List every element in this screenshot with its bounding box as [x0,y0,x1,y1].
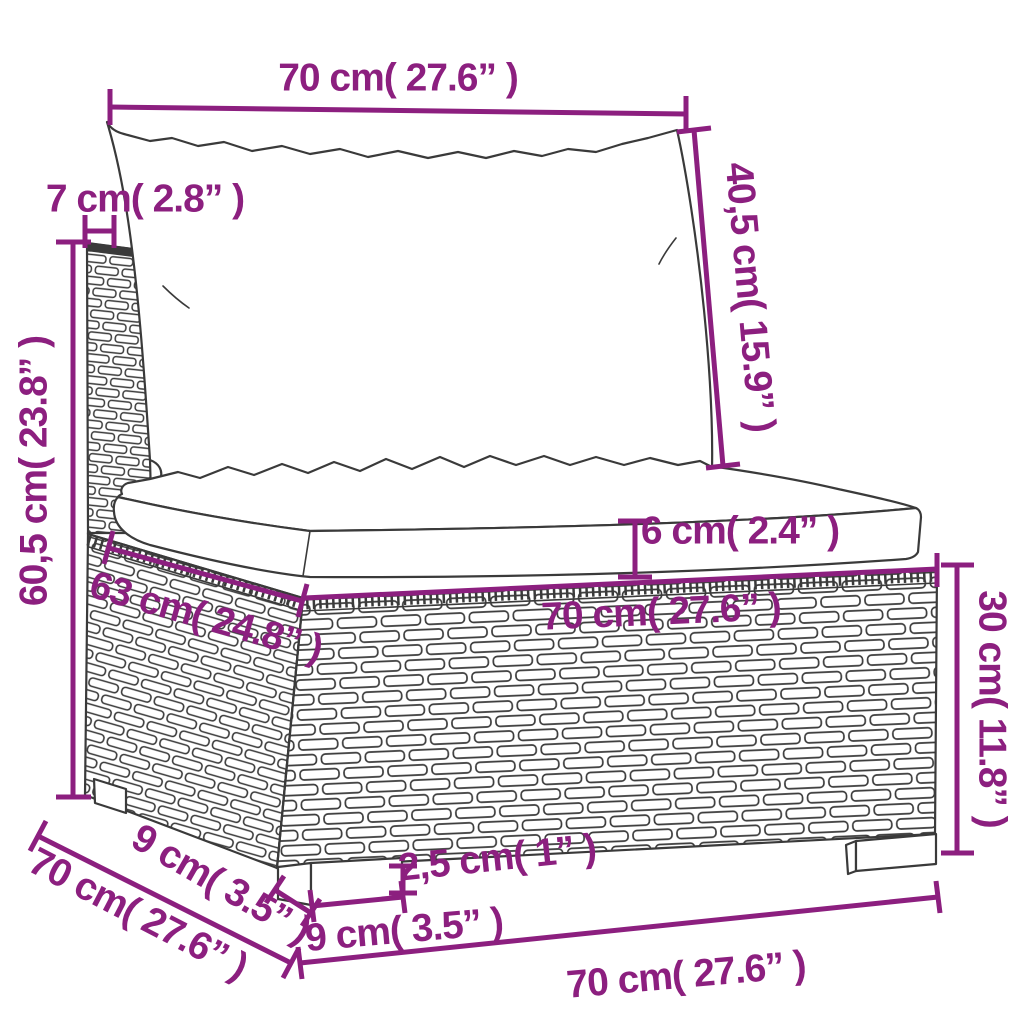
dim-label-base-height: 30 cm( 11.8” ) [971,590,1014,827]
dim-base-height: 30 cm( 11.8” ) [941,565,1014,853]
leg-front-right-side [846,841,856,874]
dim-overall-height: 60,5 cm( 23.8” ) [13,242,92,797]
leg-front-right-front [856,834,936,871]
dim-label-back-post-depth: 7 cm( 2.8” ) [46,178,244,221]
diagram-canvas: 70 cm( 27.6” ) 40,5 cm( 15.9” ) 7 cm( 2.… [0,0,1024,1024]
sofa-base [85,534,937,868]
dimension-diagram: 70 cm( 27.6” ) 40,5 cm( 15.9” ) 7 cm( 2.… [0,0,1024,1024]
dim-label-back-cushion-height: 40,5 cm( 15.9” ) [717,161,783,434]
dim-label-bottom-width: 70 cm( 27.6” ) [565,943,807,1007]
dim-label-seat-cushion-thickness: 6 cm( 2.4” ) [641,510,839,553]
dim-label-top-width: 70 cm( 27.6” ) [278,57,518,100]
dim-top-width: 70 cm( 27.6” ) [110,57,686,133]
back-cushion-body [107,122,712,480]
dim-label-overall-height: 60,5 cm( 23.8” ) [13,336,56,606]
